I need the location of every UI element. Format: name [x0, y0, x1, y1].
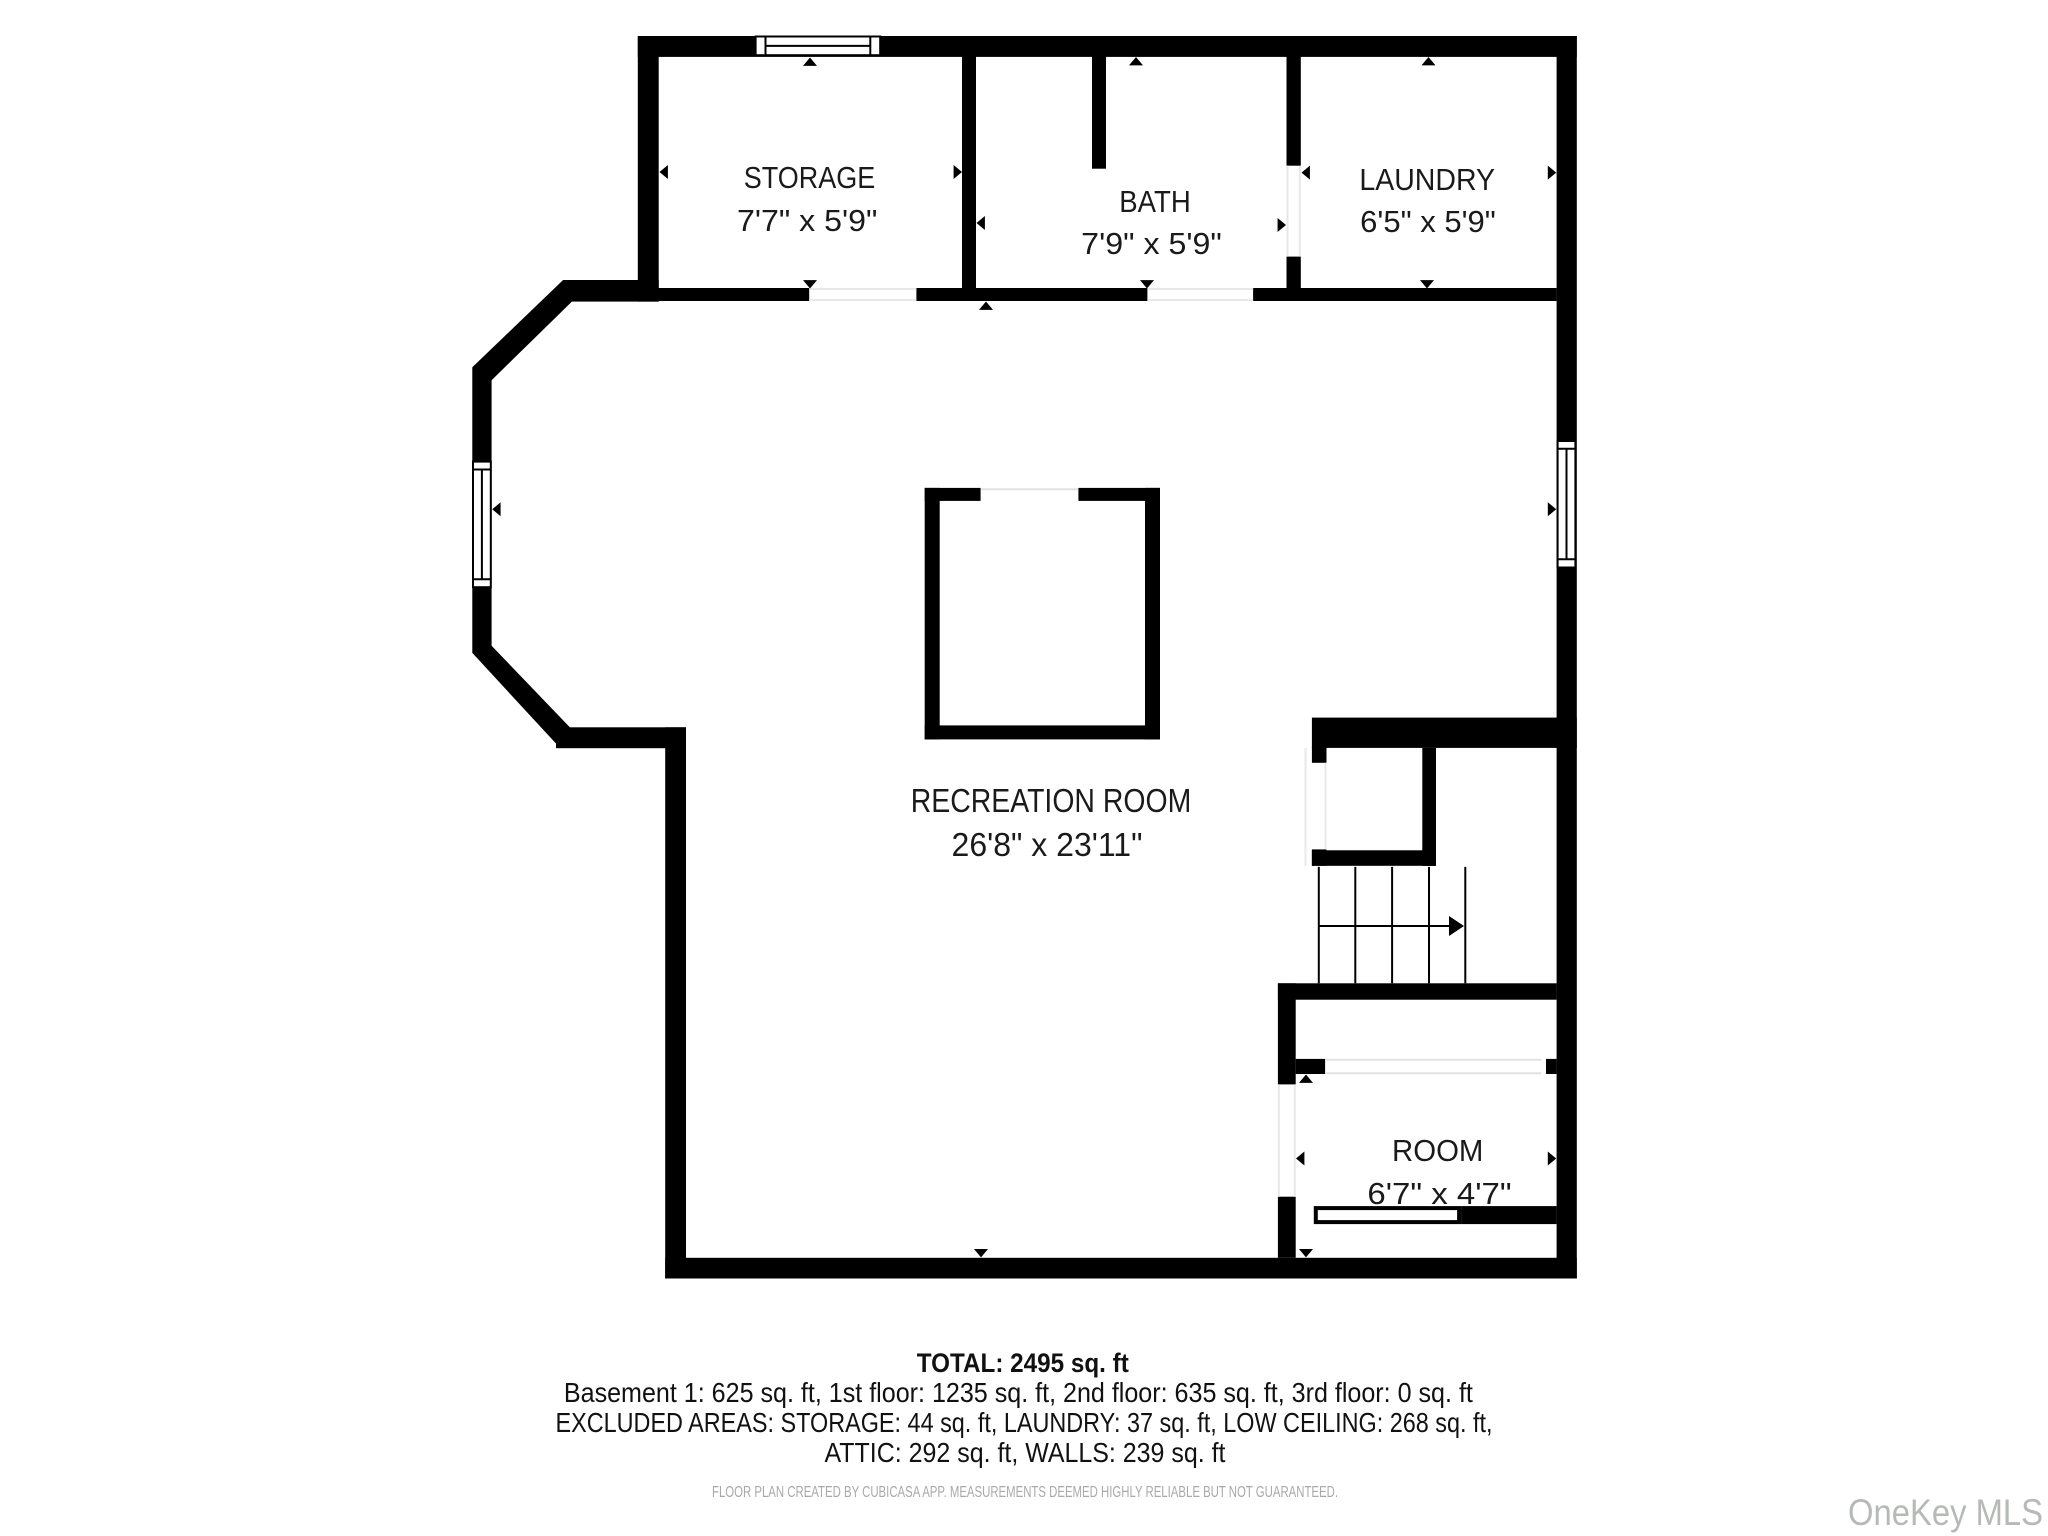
svg-text:FLOOR PLAN CREATED BY CUBICASA: FLOOR PLAN CREATED BY CUBICASA APP. MEAS… [712, 1484, 1338, 1501]
svg-text:OneKey MLS: OneKey MLS [1848, 1492, 2043, 1533]
svg-text:EXCLUDED AREAS: STORAGE: 44 sq: EXCLUDED AREAS: STORAGE: 44 sq. ft, LAUN… [556, 1407, 1493, 1438]
svg-text:26'8" x 23'11": 26'8" x 23'11" [952, 826, 1143, 863]
svg-text:6'5" x 5'9": 6'5" x 5'9" [1360, 204, 1496, 239]
svg-text:ROOM: ROOM [1392, 1133, 1483, 1168]
svg-text:RECREATION ROOM: RECREATION ROOM [911, 782, 1192, 819]
svg-text:LAUNDRY: LAUNDRY [1359, 162, 1495, 197]
svg-text:6'7" x 4'7": 6'7" x 4'7" [1367, 1176, 1511, 1211]
svg-text:7'9" x 5'9": 7'9" x 5'9" [1081, 226, 1222, 261]
svg-text:ATTIC: 292 sq. ft, WALLS: 239: ATTIC: 292 sq. ft, WALLS: 239 sq. ft [825, 1437, 1226, 1468]
svg-text:7'7" x 5'9": 7'7" x 5'9" [737, 203, 877, 238]
svg-text:Basement 1: 625 sq. ft, 1st fl: Basement 1: 625 sq. ft, 1st floor: 1235 … [564, 1377, 1473, 1408]
svg-text:STORAGE: STORAGE [744, 160, 875, 195]
svg-text:BATH: BATH [1119, 184, 1191, 219]
svg-text:TOTAL: 2495 sq. ft: TOTAL: 2495 sq. ft [917, 1348, 1129, 1378]
